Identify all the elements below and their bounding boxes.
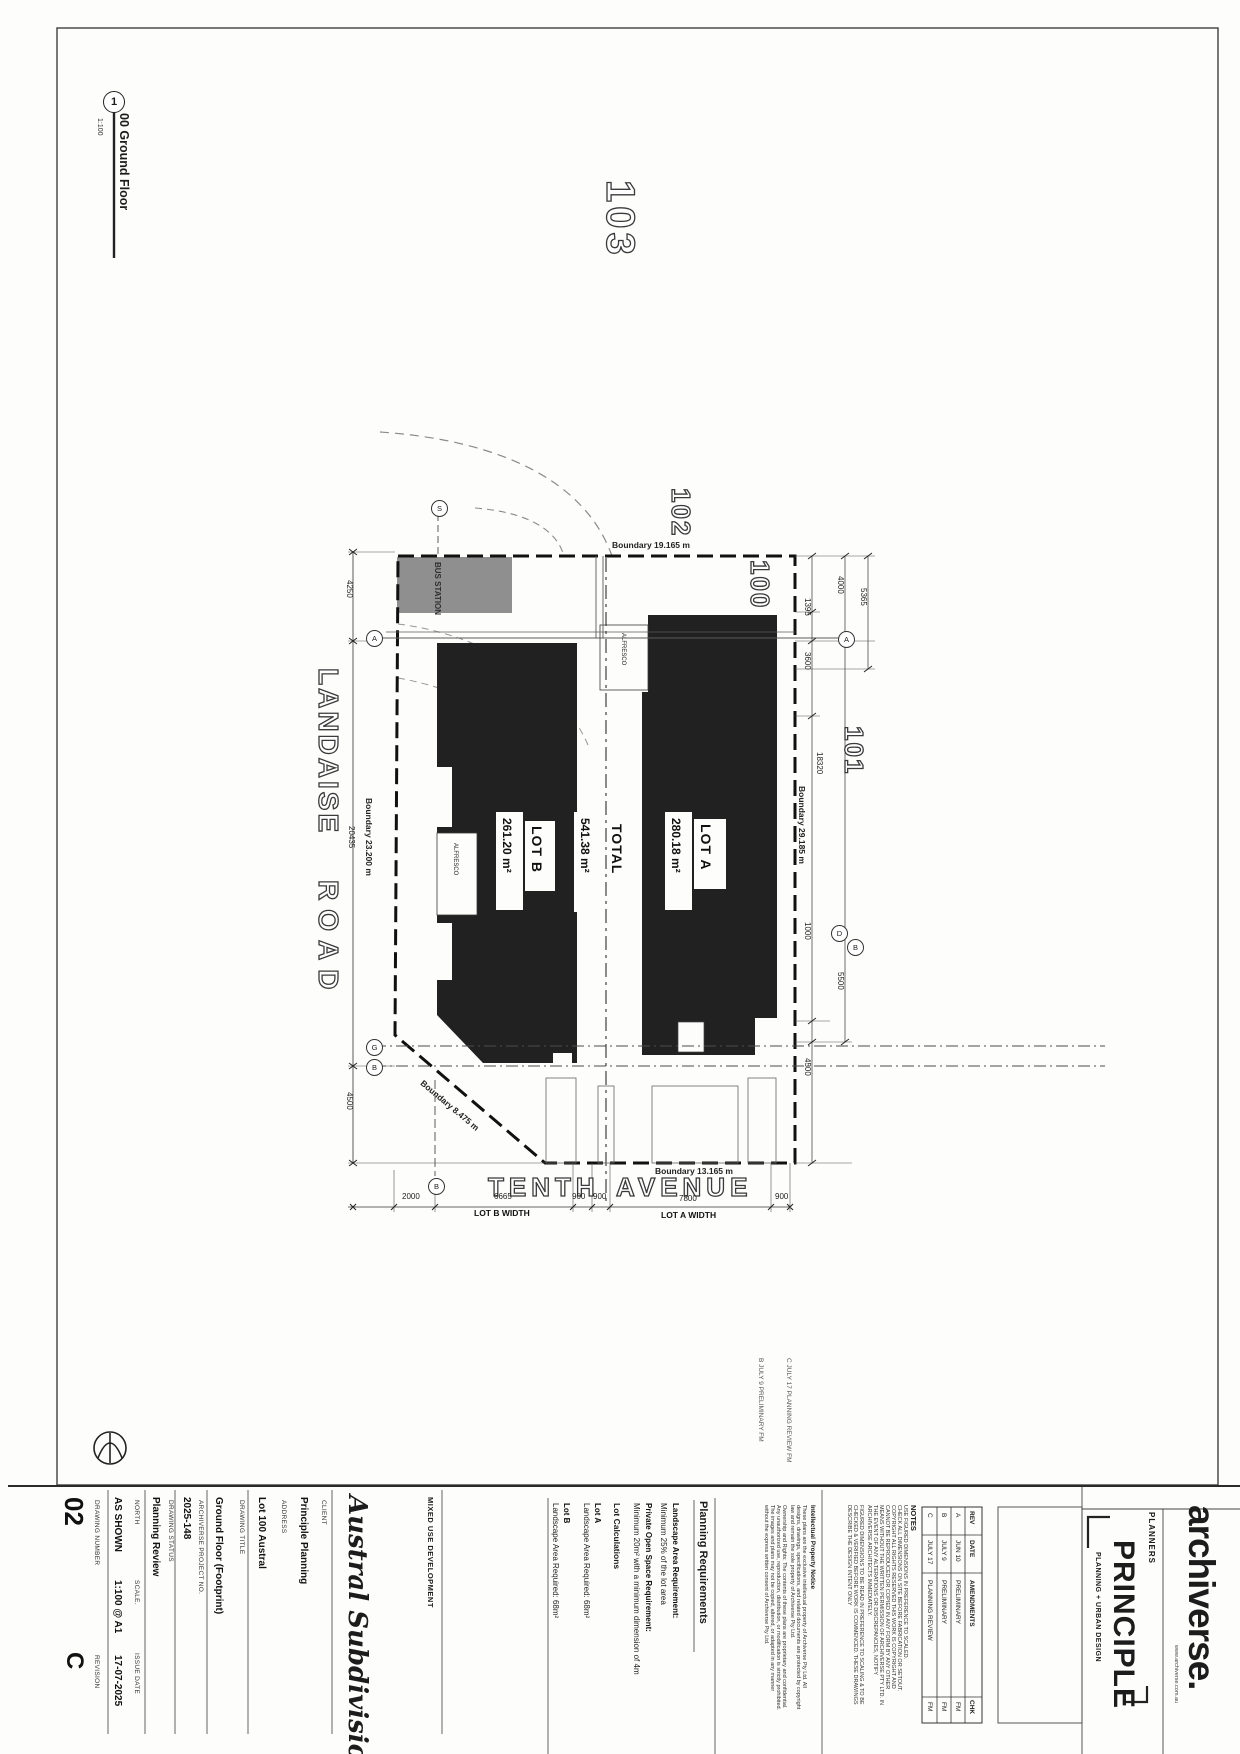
lot-b-area: 261.20 m² (500, 818, 514, 873)
parcel-100: 100 (744, 560, 775, 609)
ip-line: law and remain the sole property of Arch… (789, 1505, 795, 1638)
marker-d-right: D (831, 925, 848, 942)
planning-req-header: Planning Requirements (697, 1501, 709, 1624)
drawing-title-value: Ground Floor (Footprint) (213, 1497, 224, 1614)
notes-line: MEANS WITHOUT THE WRITTEN PERMISSION OF … (878, 1505, 884, 1705)
lot-a-calc-label: Lot A (593, 1503, 602, 1523)
dim-1395: 1395 (803, 598, 812, 616)
rev-th-date: DATE (968, 1540, 975, 1557)
kerb-arc-inner (475, 508, 564, 556)
drawing-sheet: 1 1:100 00 Ground Floor 103 102 100 101 … (0, 0, 1240, 1754)
drawing-number-label: DRAWING NUMBER (93, 1500, 100, 1565)
rev-row-b-date: JULY 9 (940, 1540, 947, 1561)
project-no-label: ARCHIVERSE PROJECT NO. (197, 1500, 204, 1594)
kerb-arc-outer (380, 432, 612, 556)
address-value: Lot 100 Austral (256, 1497, 267, 1569)
lot-a-width-label: LOT A WIDTH (661, 1210, 716, 1220)
lot-b-calc-label: Lot B (562, 1503, 571, 1523)
pos-req-label: Private Open Space Requirement: (644, 1503, 653, 1632)
dim-4000: 4000 (836, 576, 845, 594)
dim-20435: 20435 (347, 826, 356, 848)
marker-b-left: B (366, 1059, 383, 1076)
north-value: AS SHOWN (112, 1497, 123, 1552)
dim-5365: 5365 (859, 588, 868, 606)
ip-line: Any unauthorized use, reproduction, dist… (775, 1505, 781, 1710)
dim-900c: 900 (775, 1192, 788, 1201)
rev-row-a-date: JUN 10 (954, 1540, 961, 1562)
ip-line: These plans are the exclusive intellectu… (801, 1505, 807, 1688)
archiverse-logo: archiverse. (1180, 1505, 1222, 1689)
rev-row-c-amendment: PLANNING REVIEW (926, 1580, 933, 1641)
archiverse-website: www.archiverse.com.au (1173, 1645, 1179, 1703)
boundary-left-label: Boundary 23.200 m (364, 798, 374, 876)
dim-3600: 3600 (803, 652, 812, 670)
dim-7800: 7800 (679, 1194, 697, 1203)
notes-line: CANNOT BE REPRODUCED OR COPIED IN ANY FO… (884, 1505, 890, 1689)
total-name: TOTAL (609, 824, 625, 874)
notes-line: ARCHIVERSE ARCHITECTS IMMEDIATELY. (866, 1505, 872, 1616)
drawing-title-label: DRAWING TITLE (238, 1500, 245, 1554)
plan-geometry (0, 0, 1240, 1754)
dim-4500-right: 4500 (803, 1058, 812, 1076)
notes-header: NOTES (909, 1505, 918, 1531)
notes-line: COPYRIGHT ALL RIGHTS RESERVED THIS WORK … (890, 1505, 896, 1689)
road-landaise: LANDAISE (312, 668, 344, 835)
issue-date-label: ISSUE DATE (133, 1653, 140, 1694)
rev-th-chk: CHK (968, 1700, 975, 1714)
revision-label: REVISION (93, 1655, 100, 1688)
drawing-label-title: 00 Ground Floor (117, 113, 131, 210)
scale-label: SCALE. (133, 1580, 140, 1605)
notes-line: FIGURED DIMENSIONS TO BE READ IN PREFERE… (858, 1505, 864, 1705)
boundary-top-label: Boundary 19.165 m (612, 540, 690, 550)
issue-date-value: 17-07-2025 (112, 1655, 123, 1706)
bus-station-shape (397, 557, 512, 613)
dim-900b: 900 (593, 1192, 606, 1201)
revision-value: C (60, 1652, 88, 1669)
ip-line: The images and plans may not be copied, … (769, 1505, 775, 1691)
dim-6665: 6665 (494, 1192, 512, 1201)
empty-logo-box (998, 1507, 1082, 1723)
lot-a-calc-value: Landscape Area Required: 68m² (582, 1503, 591, 1618)
lot-b-name: LOT B (529, 826, 545, 873)
ip-line: Ownership and Rights: The contents of th… (781, 1505, 787, 1709)
dim-18320: 18320 (815, 752, 824, 774)
bus-station-label: BUS STATION (432, 562, 443, 610)
road-landaise-2: ROAD (312, 880, 344, 998)
scale-value: 1:100 @ A1 (112, 1580, 123, 1633)
drawing-number-value: 02 (58, 1497, 89, 1526)
parcel-101: 101 (838, 726, 869, 775)
status-label: DRAWING STATUS (167, 1500, 174, 1562)
notes-line: CHECKED & VERIFIED BEFORE WORK IS COMMEN… (852, 1505, 858, 1705)
marker-s: S (431, 500, 448, 517)
marker-a-right: A (838, 631, 855, 648)
client-value: Principle Planning (298, 1497, 309, 1584)
lot-b-width-label: LOT B WIDTH (474, 1208, 530, 1218)
ip-notice-header: Intellectual Property Notice (809, 1505, 816, 1589)
lot-calcs-header: Lot Calculations (612, 1503, 622, 1569)
rev-row-c: C (926, 1513, 933, 1518)
planners-label: PLANNERS (1147, 1512, 1156, 1564)
rev-row-b-chk: FM (940, 1702, 947, 1711)
notes-line: DESCRIBE THE DESIGN INTENT ONLY (846, 1505, 852, 1606)
alfresco-a-label: ALFRESCO (620, 633, 626, 665)
project-type: MIXED USE DEVELOPMENT (426, 1497, 435, 1608)
project-name: Austral Subdivision (342, 1495, 372, 1754)
lot-a-area: 280.18 m² (669, 818, 683, 873)
status-value: Planning Review (150, 1497, 161, 1576)
marker-a-left: A (366, 630, 383, 647)
rev-row-a-amendment: PRELIMINARY (954, 1580, 961, 1624)
rev-row-a-chk: FM (954, 1702, 961, 1711)
rev-ghost-c: C JULY 17 PLANNING REVIEW FM (785, 1358, 792, 1463)
marker-b-right: B (847, 939, 864, 956)
landscape-req-label: Landscape Area Requirement: (671, 1503, 680, 1618)
dim-4500-left: 4500 (345, 1092, 354, 1110)
rev-ghost-b: B JULY 9 PRELIMINARY FM (757, 1358, 764, 1442)
dim-900a: 900 (572, 1192, 585, 1201)
rev-th-amendments: AMENDMENTS (968, 1580, 975, 1627)
lot-a-name: LOT A (698, 824, 714, 870)
marker-g: G (366, 1039, 383, 1056)
ip-line: designs, drawings, specifications, and r… (795, 1505, 801, 1709)
boundary-bottom-label: Boundary 13.165 m (655, 1166, 733, 1176)
dim-1000: 1000 (803, 922, 812, 940)
notes-line: THE EVENT OF ANY ALTERATIONS OR DISCREPA… (872, 1505, 878, 1675)
principle-logo: PRINCIPLE (1106, 1540, 1140, 1709)
drawing-label-number: 1 (103, 91, 125, 113)
notes-line: USE FIGURED DIMENSIONS IN PREFERENCE TO … (902, 1505, 908, 1659)
rev-row-b-amendment: PRELIMINARY (940, 1580, 947, 1624)
notes-line: CHECK ALL DIMENSIONS ON SITE BEFORE FABR… (896, 1505, 902, 1691)
address-label: ADDRESS (280, 1500, 287, 1534)
dim-2000: 2000 (402, 1192, 420, 1201)
principle-sub-label: PLANNING + URBAN DESIGN (1094, 1552, 1101, 1662)
client-label: CLIENT (320, 1500, 327, 1525)
parcel-103: 103 (597, 180, 642, 259)
total-area: 541.38 m² (578, 818, 592, 873)
marker-b-bottom: B (428, 1178, 445, 1195)
ip-line: without the express written consent of A… (763, 1505, 769, 1644)
alfresco-b-label: ALFRESCO (452, 843, 458, 875)
pos-req-value: Minimum 20m² with a minimum dimension of… (632, 1503, 641, 1675)
rev-row-c-chk: FM (926, 1702, 933, 1711)
rev-row-b: B (940, 1513, 947, 1517)
lot-b-calc-value: Landscape Area Required: 68m² (551, 1503, 560, 1618)
project-no-value: 2025-148 (181, 1497, 192, 1539)
landscape-req-value: Minimum 25% of the lot area (659, 1503, 668, 1605)
rev-row-c-date: JULY 17 (926, 1540, 933, 1564)
rev-row-a: A (954, 1513, 961, 1517)
north-label: NORTH (133, 1500, 140, 1525)
parcel-102: 102 (665, 488, 696, 537)
dim-5500: 5500 (836, 972, 845, 990)
boundary-right-label: Boundary 29.185 m (797, 786, 807, 864)
dim-4250: 4250 (345, 580, 354, 598)
rev-th-rev: REV (968, 1511, 975, 1524)
drawing-label-scale: 1:100 (96, 118, 103, 136)
